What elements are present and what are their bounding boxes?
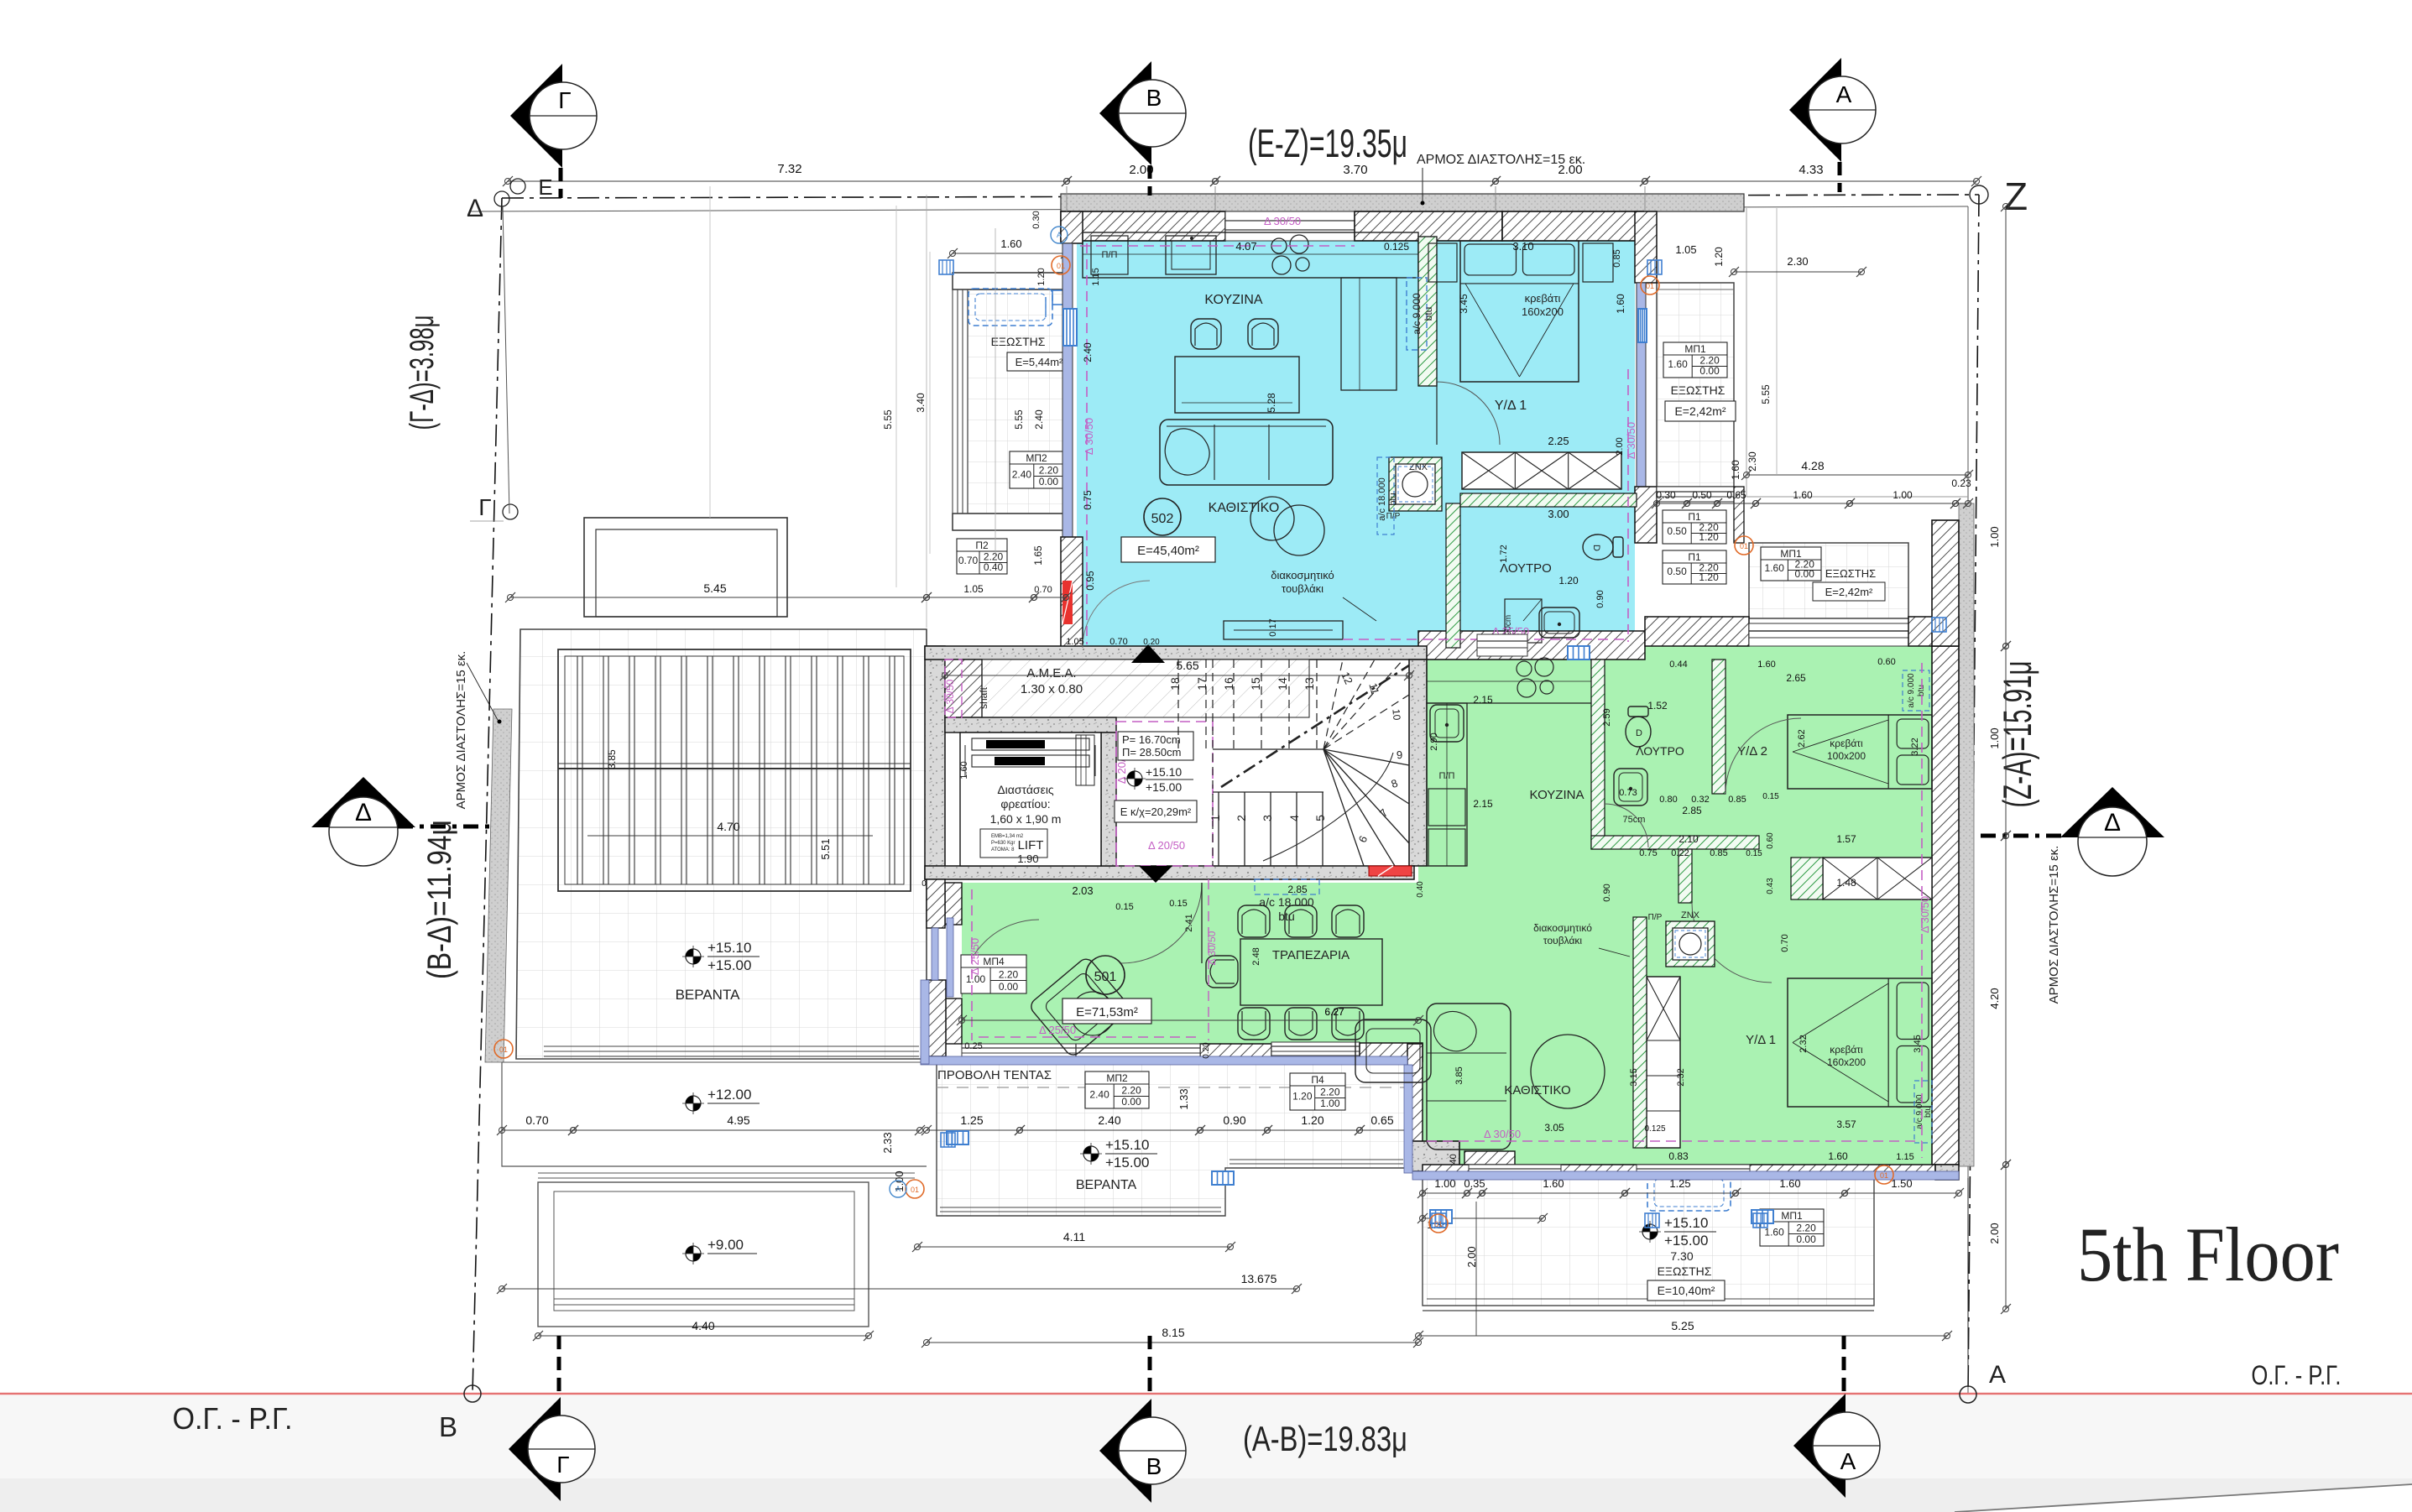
svg-text:+9.00: +9.00 bbox=[707, 1237, 744, 1253]
svg-text:2.40: 2.40 bbox=[1098, 1113, 1120, 1127]
svg-text:10: 10 bbox=[1390, 708, 1402, 721]
svg-text:Δ 30/50: Δ 30/50 bbox=[1625, 422, 1637, 459]
svg-text:3.15: 3.15 bbox=[1629, 1068, 1639, 1086]
svg-text:ΑΤΟΜΑ: 8: ΑΤΟΜΑ: 8 bbox=[991, 847, 1015, 852]
svg-text:+15.10: +15.10 bbox=[1664, 1215, 1708, 1231]
svg-text:4.07: 4.07 bbox=[1235, 240, 1256, 253]
svg-text:1.60: 1.60 bbox=[1828, 1150, 1848, 1162]
svg-text:2.85: 2.85 bbox=[1682, 805, 1702, 816]
svg-text:502: 502 bbox=[1151, 512, 1174, 526]
svg-text:ΕΞΩΣΤΗΣ: ΕΞΩΣΤΗΣ bbox=[991, 335, 1046, 348]
svg-text:0.60: 0.60 bbox=[1877, 657, 1895, 667]
svg-text:2.20: 2.20 bbox=[1121, 1085, 1141, 1097]
svg-text:a/c 9.000: a/c 9.000 bbox=[1411, 293, 1423, 335]
svg-text:4.28: 4.28 bbox=[1801, 459, 1824, 472]
svg-text:0.00: 0.00 bbox=[1699, 365, 1720, 377]
svg-text:8.15: 8.15 bbox=[1162, 1326, 1184, 1339]
svg-text:13: 13 bbox=[1303, 677, 1316, 691]
svg-text:ΜΠ1: ΜΠ1 bbox=[1781, 1210, 1803, 1222]
svg-text:0.00: 0.00 bbox=[999, 981, 1019, 993]
svg-text:Π/Ρ: Π/Ρ bbox=[1648, 913, 1663, 922]
svg-text:1.00: 1.00 bbox=[1893, 489, 1913, 501]
svg-text:Π/Π: Π/Π bbox=[1439, 771, 1455, 781]
svg-text:Δ 25/50: Δ 25/50 bbox=[968, 938, 981, 975]
svg-text:4.95: 4.95 bbox=[727, 1113, 749, 1127]
svg-text:2.20: 2.20 bbox=[1039, 465, 1059, 477]
svg-text:6.27: 6.27 bbox=[1324, 1006, 1344, 1018]
svg-text:0.65: 0.65 bbox=[1726, 489, 1746, 501]
svg-text:0.20: 0.20 bbox=[1202, 1042, 1211, 1059]
svg-text:Π4: Π4 bbox=[1311, 1074, 1324, 1086]
svg-text:0.70: 0.70 bbox=[1034, 585, 1052, 595]
svg-text:τουβλάκι: τουβλάκι bbox=[1282, 582, 1323, 595]
svg-text:1.00: 1.00 bbox=[1320, 1098, 1340, 1109]
svg-text:Δ 30/50: Δ 30/50 bbox=[1206, 931, 1218, 965]
svg-text:Δ: Δ bbox=[355, 799, 372, 826]
svg-text:+15.00: +15.00 bbox=[1664, 1233, 1708, 1249]
svg-text:2.32: 2.32 bbox=[1676, 1068, 1686, 1086]
svg-text:18: 18 bbox=[1168, 677, 1182, 691]
svg-text:(Γ-Δ)=3.98μ: (Γ-Δ)=3.98μ bbox=[404, 315, 441, 430]
svg-text:2.33: 2.33 bbox=[881, 1132, 894, 1153]
svg-text:Β: Β bbox=[1146, 1453, 1162, 1479]
svg-text:2.30: 2.30 bbox=[1787, 255, 1808, 268]
svg-text:5.55: 5.55 bbox=[1760, 384, 1772, 404]
svg-text:ΖΝΧ: ΖΝΧ bbox=[1409, 462, 1428, 472]
svg-text:0.125: 0.125 bbox=[1384, 241, 1409, 253]
svg-text:3.85: 3.85 bbox=[1454, 1066, 1464, 1084]
svg-text:3.00: 3.00 bbox=[1548, 508, 1569, 520]
svg-text:1.05: 1.05 bbox=[1675, 243, 1696, 256]
svg-text:0.22: 0.22 bbox=[1671, 848, 1689, 858]
svg-text:Δ 30/50: Δ 30/50 bbox=[1919, 896, 1931, 933]
svg-text:LIFT: LIFT bbox=[1018, 838, 1044, 852]
svg-text:Υ/Δ 1: Υ/Δ 1 bbox=[1746, 1033, 1776, 1047]
svg-text:1.57: 1.57 bbox=[1836, 833, 1856, 845]
svg-text:0.75: 0.75 bbox=[1082, 490, 1094, 510]
svg-text:2.41: 2.41 bbox=[1184, 914, 1194, 931]
svg-text:0.90: 0.90 bbox=[1602, 884, 1612, 901]
svg-text:3.22: 3.22 bbox=[1910, 738, 1920, 755]
svg-text:ΚΑΘΙΣΤΙΚΟ: ΚΑΘΙΣΤΙΚΟ bbox=[1504, 1083, 1570, 1098]
svg-text:1.20: 1.20 bbox=[1036, 268, 1047, 285]
svg-text:0.44: 0.44 bbox=[1669, 660, 1687, 670]
svg-text:ΚΟΥΖΙΝΑ: ΚΟΥΖΙΝΑ bbox=[1530, 788, 1585, 802]
svg-text:1.60: 1.60 bbox=[1765, 562, 1785, 574]
svg-text:2.25: 2.25 bbox=[1548, 435, 1569, 447]
svg-text:0.23: 0.23 bbox=[1951, 477, 1971, 489]
svg-text:ΒΕΡΑΝΤΑ: ΒΕΡΑΝΤΑ bbox=[676, 987, 740, 1003]
svg-text:Δ 20/50: Δ 20/50 bbox=[1148, 839, 1185, 852]
svg-text:2.40: 2.40 bbox=[1089, 1089, 1109, 1101]
svg-text:0.15: 0.15 bbox=[1746, 849, 1762, 858]
svg-text:ΕΞΩΣΤΗΣ: ΕΞΩΣΤΗΣ bbox=[1658, 1264, 1712, 1278]
svg-text:κρεβάτι: κρεβάτι bbox=[1830, 738, 1863, 749]
svg-text:1.00: 1.00 bbox=[1988, 526, 2001, 547]
svg-text:1.65: 1.65 bbox=[1032, 545, 1044, 566]
svg-text:0.85: 0.85 bbox=[1728, 795, 1746, 805]
svg-text:1.25: 1.25 bbox=[960, 1113, 983, 1127]
svg-text:Δ 25/50: Δ 25/50 bbox=[1039, 1024, 1076, 1036]
svg-text:0.85: 0.85 bbox=[1612, 249, 1622, 267]
svg-text:1.20: 1.20 bbox=[1699, 531, 1719, 543]
svg-text:0.70: 0.70 bbox=[1109, 637, 1127, 647]
svg-text:ΚΟΥΖΙΝΑ: ΚΟΥΖΙΝΑ bbox=[1204, 293, 1263, 307]
svg-text:0.70: 0.70 bbox=[1780, 934, 1790, 952]
svg-text:0.32: 0.32 bbox=[1691, 795, 1709, 805]
svg-text:1.33: 1.33 bbox=[1177, 1088, 1190, 1109]
svg-text:01: 01 bbox=[499, 1045, 508, 1054]
svg-text:+15.00: +15.00 bbox=[1146, 780, 1182, 794]
svg-text:0.00: 0.00 bbox=[1039, 476, 1059, 487]
svg-text:2.00: 2.00 bbox=[1988, 1223, 2001, 1243]
svg-text:5.45: 5.45 bbox=[703, 581, 726, 595]
svg-text:1: 1 bbox=[1209, 815, 1222, 821]
svg-text:1.20: 1.20 bbox=[1292, 1091, 1313, 1103]
svg-text:2.40: 2.40 bbox=[1082, 342, 1094, 362]
svg-text:+15.00: +15.00 bbox=[707, 957, 751, 973]
svg-text:διακοσμητικό: διακοσμητικό bbox=[1533, 922, 1592, 934]
svg-text:Π/Ρ: Π/Ρ bbox=[1386, 512, 1401, 521]
svg-text:ΕΞΩΣΤΗΣ: ΕΞΩΣΤΗΣ bbox=[1671, 383, 1725, 397]
svg-text:5: 5 bbox=[1313, 815, 1327, 821]
svg-text:1,60 x 1,90 m: 1,60 x 1,90 m bbox=[990, 812, 1062, 826]
svg-text:3.05: 3.05 bbox=[1544, 1122, 1564, 1134]
svg-text:D: D bbox=[1636, 728, 1642, 738]
svg-text:2.48: 2.48 bbox=[1251, 947, 1261, 965]
svg-text:9: 9 bbox=[1396, 748, 1403, 762]
svg-text:A: A bbox=[1057, 231, 1062, 239]
svg-text:3: 3 bbox=[1261, 815, 1274, 821]
svg-text:0.50: 0.50 bbox=[1667, 525, 1687, 537]
svg-text:3.85: 3.85 bbox=[606, 749, 618, 769]
svg-text:ΕΞΩΣΤΗΣ: ΕΞΩΣΤΗΣ bbox=[1825, 567, 1876, 580]
svg-text:E=5,44m²: E=5,44m² bbox=[1015, 356, 1063, 368]
svg-text:3.70: 3.70 bbox=[1343, 163, 1367, 177]
svg-text:shaft: shaft bbox=[978, 686, 989, 709]
svg-text:17: 17 bbox=[1195, 677, 1209, 691]
svg-text:0.83: 0.83 bbox=[1668, 1150, 1689, 1162]
svg-text:0.73: 0.73 bbox=[1619, 788, 1637, 798]
svg-text:Δ 30/50: Δ 30/50 bbox=[1264, 215, 1301, 227]
svg-text:0.70: 0.70 bbox=[525, 1113, 548, 1127]
svg-text:4: 4 bbox=[1287, 815, 1301, 821]
svg-text:1.60: 1.60 bbox=[959, 761, 969, 779]
svg-text:0.40: 0.40 bbox=[1416, 881, 1425, 898]
svg-text:3.45: 3.45 bbox=[1913, 1035, 1923, 1052]
svg-text:13.675: 13.675 bbox=[1241, 1272, 1277, 1285]
svg-text:Α: Α bbox=[1836, 81, 1852, 107]
svg-text:0.25: 0.25 bbox=[964, 1041, 982, 1051]
svg-text:(A-B)=19.83μ: (A-B)=19.83μ bbox=[1243, 1419, 1407, 1458]
svg-text:Π= 28.50cm: Π= 28.50cm bbox=[1122, 746, 1181, 759]
svg-text:+15.10: +15.10 bbox=[707, 940, 751, 956]
svg-text:Γ: Γ bbox=[556, 1452, 569, 1478]
svg-text:1.60: 1.60 bbox=[1793, 489, 1813, 501]
svg-text:160x200: 160x200 bbox=[1522, 305, 1564, 318]
svg-text:ΜΠ2: ΜΠ2 bbox=[1106, 1072, 1128, 1084]
svg-text:5.28: 5.28 bbox=[1266, 393, 1277, 413]
svg-text:01: 01 bbox=[1646, 282, 1654, 290]
svg-text:Α: Α bbox=[1989, 1361, 2006, 1389]
svg-text:0.43: 0.43 bbox=[1766, 878, 1775, 894]
svg-text:Δ 30/50: Δ 30/50 bbox=[1083, 418, 1095, 455]
svg-text:P= 16.70cm: P= 16.70cm bbox=[1122, 733, 1181, 746]
svg-text:P=630 Kgr: P=630 Kgr bbox=[991, 841, 1015, 846]
svg-text:Π2: Π2 bbox=[975, 540, 989, 551]
svg-text:1.15: 1.15 bbox=[1091, 268, 1101, 285]
svg-text:φρεατίου:: φρεατίου: bbox=[1000, 797, 1050, 811]
svg-text:2.30: 2.30 bbox=[1746, 451, 1758, 472]
svg-text:4.33: 4.33 bbox=[1799, 163, 1823, 177]
svg-text:15: 15 bbox=[1249, 677, 1262, 691]
svg-text:btu: btu bbox=[1388, 493, 1398, 505]
svg-text:1.20: 1.20 bbox=[1699, 571, 1719, 583]
svg-text:Δ: Δ bbox=[467, 195, 483, 222]
svg-text:2.65: 2.65 bbox=[1786, 672, 1806, 684]
svg-text:2.62: 2.62 bbox=[1797, 729, 1807, 747]
svg-text:(E-Z)=19.35μ: (E-Z)=19.35μ bbox=[1248, 121, 1407, 165]
svg-text:0.60: 0.60 bbox=[1766, 832, 1775, 849]
svg-text:2.32: 2.32 bbox=[1799, 1035, 1809, 1052]
svg-text:Ε κ/χ=20,29m²: Ε κ/χ=20,29m² bbox=[1120, 806, 1192, 818]
svg-text:2: 2 bbox=[1235, 815, 1248, 821]
svg-text:160x200: 160x200 bbox=[1827, 1056, 1866, 1068]
svg-text:01: 01 bbox=[1880, 1171, 1888, 1180]
svg-text:1.60: 1.60 bbox=[1668, 358, 1688, 370]
svg-text:Δ 30/50: Δ 30/50 bbox=[1484, 1128, 1521, 1140]
svg-text:01: 01 bbox=[911, 1186, 919, 1194]
svg-text:2.10: 2.10 bbox=[1678, 833, 1699, 845]
svg-text:Π/Π: Π/Π bbox=[1102, 250, 1118, 260]
svg-text:btu: btu bbox=[1924, 1106, 1933, 1118]
svg-text:1.20: 1.20 bbox=[1301, 1113, 1323, 1127]
svg-text:2.00: 2.00 bbox=[1615, 437, 1625, 455]
svg-text:Δ: Δ bbox=[2104, 809, 2121, 837]
svg-text:+15.00: +15.00 bbox=[1105, 1155, 1149, 1170]
svg-text:0.50: 0.50 bbox=[1692, 489, 1712, 501]
svg-text:01: 01 bbox=[1740, 542, 1748, 550]
svg-text:E=45,40m²: E=45,40m² bbox=[1137, 544, 1199, 558]
svg-text:0.15: 0.15 bbox=[1115, 902, 1133, 912]
svg-text:3.10: 3.10 bbox=[1512, 240, 1533, 253]
svg-text:2.20: 2.20 bbox=[999, 969, 1019, 981]
svg-text:1.60: 1.60 bbox=[1757, 660, 1775, 670]
svg-text:κρεβάτι: κρεβάτι bbox=[1830, 1044, 1863, 1056]
svg-text:5.51: 5.51 bbox=[819, 838, 832, 859]
svg-text:0.17: 0.17 bbox=[1268, 618, 1278, 636]
svg-text:1.20: 1.20 bbox=[1713, 247, 1725, 267]
svg-text:a/c 9.000: a/c 9.000 bbox=[1907, 673, 1916, 708]
svg-text:2.40: 2.40 bbox=[1012, 469, 1032, 481]
svg-text:a/c 18.000: a/c 18.000 bbox=[1377, 477, 1387, 520]
svg-text:A: A bbox=[895, 1185, 901, 1193]
svg-text:ΑΡΜΟΣ ΔΙΑΣΤΟΛΗΣ=15 εκ.: ΑΡΜΟΣ ΔΙΑΣΤΟΛΗΣ=15 εκ. bbox=[2047, 846, 2061, 1004]
svg-text:ΠΡΟΒΟΛΗ ΤΕΝΤΑΣ: ΠΡΟΒΟΛΗ ΤΕΝΤΑΣ bbox=[937, 1068, 1052, 1082]
svg-text:1.60: 1.60 bbox=[1615, 294, 1626, 314]
svg-text:0.90: 0.90 bbox=[1223, 1113, 1245, 1127]
svg-text:0.90: 0.90 bbox=[1595, 590, 1605, 607]
svg-text:2.90: 2.90 bbox=[1429, 733, 1439, 750]
svg-text:2.20: 2.20 bbox=[1796, 1223, 1816, 1234]
svg-text:E=71,53m²: E=71,53m² bbox=[1076, 1005, 1138, 1019]
svg-text:Διαστάσεις: Διαστάσεις bbox=[997, 783, 1054, 796]
svg-text:14: 14 bbox=[1276, 677, 1289, 691]
svg-text:3.40: 3.40 bbox=[915, 393, 927, 413]
svg-text:1.60: 1.60 bbox=[1730, 460, 1741, 480]
svg-text:τουβλάκι: τουβλάκι bbox=[1543, 935, 1582, 946]
svg-text:0.70: 0.70 bbox=[958, 555, 979, 566]
svg-text:ΜΠ4: ΜΠ4 bbox=[983, 956, 1005, 967]
svg-text:0.00: 0.00 bbox=[1795, 568, 1815, 580]
svg-text:0.85: 0.85 bbox=[1710, 848, 1727, 858]
svg-text:0.40: 0.40 bbox=[984, 561, 1004, 573]
svg-text:501: 501 bbox=[1094, 970, 1117, 984]
svg-text:2.40: 2.40 bbox=[1033, 409, 1045, 430]
svg-text:Ε: Ε bbox=[538, 175, 552, 200]
svg-text:Υ/Δ 1: Υ/Δ 1 bbox=[1495, 399, 1527, 413]
svg-text:Ο.Γ. - Ρ.Γ.: Ο.Γ. - Ρ.Γ. bbox=[173, 1401, 293, 1436]
svg-text:btu: btu bbox=[1423, 307, 1434, 321]
svg-text:0.00: 0.00 bbox=[1796, 1233, 1816, 1245]
svg-text:ΑΡΜΟΣ ΔΙΑΣΤΟΛΗΣ=15 εκ.: ΑΡΜΟΣ ΔΙΑΣΤΟΛΗΣ=15 εκ. bbox=[454, 651, 468, 810]
svg-text:Α.Μ.Ε.Α.: Α.Μ.Ε.Α. bbox=[1026, 666, 1076, 680]
svg-text:5.65: 5.65 bbox=[1176, 659, 1198, 672]
svg-text:100x200: 100x200 bbox=[1827, 750, 1866, 762]
svg-text:btu: btu bbox=[1278, 910, 1294, 923]
svg-text:0.30: 0.30 bbox=[1031, 211, 1042, 228]
svg-text:5th Floor: 5th Floor bbox=[2077, 1212, 2339, 1297]
svg-text:+12.00: +12.00 bbox=[707, 1087, 751, 1103]
svg-text:2.15: 2.15 bbox=[1473, 798, 1493, 810]
svg-text:a/c 18.000: a/c 18.000 bbox=[1259, 895, 1314, 909]
svg-text:3.57: 3.57 bbox=[1836, 1118, 1856, 1130]
svg-text:2.59: 2.59 bbox=[1602, 708, 1612, 726]
svg-text:1.20: 1.20 bbox=[1558, 575, 1579, 587]
svg-text:0.50: 0.50 bbox=[1667, 566, 1687, 577]
svg-text:5.55: 5.55 bbox=[882, 409, 894, 430]
svg-text:2.20: 2.20 bbox=[1320, 1087, 1340, 1098]
svg-text:0.125: 0.125 bbox=[1644, 1124, 1665, 1134]
svg-text:ΖΝΧ: ΖΝΧ bbox=[1681, 910, 1700, 920]
svg-text:(Z-A)=15.91μ: (Z-A)=15.91μ bbox=[1995, 661, 2039, 808]
svg-text:1.90: 1.90 bbox=[1017, 852, 1038, 865]
svg-text:E=2,42m²: E=2,42m² bbox=[1674, 404, 1725, 418]
svg-text:Γ: Γ bbox=[558, 87, 571, 113]
svg-text:+15.10: +15.10 bbox=[1146, 765, 1182, 779]
svg-text:E=10,40m²: E=10,40m² bbox=[1658, 1284, 1715, 1297]
svg-text:5.25: 5.25 bbox=[1671, 1319, 1694, 1332]
svg-text:0.65: 0.65 bbox=[1370, 1113, 1393, 1127]
svg-text:ΒΕΡΑΝΤΑ: ΒΕΡΑΝΤΑ bbox=[1076, 1178, 1137, 1192]
svg-text:7.32: 7.32 bbox=[777, 162, 801, 176]
svg-text:Z: Z bbox=[2004, 175, 2028, 218]
svg-text:0.75: 0.75 bbox=[1639, 848, 1657, 858]
svg-text:Β: Β bbox=[439, 1411, 457, 1442]
svg-text:5.55: 5.55 bbox=[1013, 409, 1025, 430]
svg-text:Β: Β bbox=[1146, 85, 1162, 111]
svg-text:0.15: 0.15 bbox=[1762, 792, 1779, 801]
svg-text:2.15: 2.15 bbox=[1473, 694, 1493, 706]
svg-text:κρεβάτι: κρεβάτι bbox=[1525, 292, 1561, 305]
svg-text:2.00: 2.00 bbox=[1558, 163, 1582, 177]
svg-text:4.20: 4.20 bbox=[1988, 988, 2001, 1009]
svg-text:01: 01 bbox=[1057, 262, 1065, 270]
svg-text:ΜΠ1: ΜΠ1 bbox=[1684, 343, 1706, 355]
svg-text:Γ: Γ bbox=[478, 494, 491, 520]
svg-text:1.52: 1.52 bbox=[1647, 700, 1668, 712]
svg-text:1.30 x 0.80: 1.30 x 0.80 bbox=[1021, 682, 1083, 696]
svg-text:4.40: 4.40 bbox=[692, 1319, 714, 1332]
svg-text:ΜΠ2: ΜΠ2 bbox=[1026, 452, 1047, 464]
svg-text:1.15: 1.15 bbox=[1896, 1152, 1913, 1162]
svg-text:διακοσμητικό: διακοσμητικό bbox=[1271, 569, 1334, 581]
svg-text:0.20: 0.20 bbox=[1143, 638, 1160, 647]
svg-text:+15.10: +15.10 bbox=[1105, 1137, 1149, 1153]
svg-text:1.05: 1.05 bbox=[963, 583, 984, 595]
svg-text:Δ 30/50: Δ 30/50 bbox=[944, 679, 956, 713]
svg-text:0.30: 0.30 bbox=[1656, 489, 1676, 501]
svg-text:ΚΑΘΙΣΤΙΚΟ: ΚΑΘΙΣΤΙΚΟ bbox=[1209, 501, 1280, 515]
svg-text:3.45: 3.45 bbox=[1458, 294, 1470, 314]
svg-text:4.70: 4.70 bbox=[717, 820, 739, 833]
svg-text:0.80: 0.80 bbox=[1659, 795, 1677, 805]
svg-text:Ο.Γ. - Ρ.Γ.: Ο.Γ. - Ρ.Γ. bbox=[2252, 1360, 2342, 1390]
svg-text:1.05: 1.05 bbox=[1066, 637, 1083, 647]
svg-text:1.00: 1.00 bbox=[1988, 727, 2001, 748]
svg-text:75cm: 75cm bbox=[1623, 815, 1646, 825]
svg-text:01: 01 bbox=[1434, 1220, 1443, 1228]
svg-text:0.15: 0.15 bbox=[1169, 899, 1187, 909]
svg-text:16: 16 bbox=[1222, 677, 1235, 691]
svg-text:(Β-Δ)=11.94μ: (Β-Δ)=11.94μ bbox=[421, 820, 458, 979]
svg-text:2.85: 2.85 bbox=[1287, 884, 1308, 895]
svg-text:ΤΡΑΠΕΖΑΡΙΑ: ΤΡΑΠΕΖΑΡΙΑ bbox=[1272, 948, 1350, 962]
svg-text:7.30: 7.30 bbox=[1670, 1249, 1693, 1263]
svg-text:1.60: 1.60 bbox=[1000, 237, 1021, 250]
svg-text:0.00: 0.00 bbox=[1121, 1096, 1141, 1108]
svg-text:1.72: 1.72 bbox=[1499, 545, 1509, 562]
svg-text:0.95: 0.95 bbox=[1084, 571, 1096, 591]
svg-text:E=2,42m²: E=2,42m² bbox=[1825, 586, 1873, 598]
svg-text:Α: Α bbox=[1840, 1448, 1856, 1474]
svg-text:4.11: 4.11 bbox=[1063, 1230, 1085, 1243]
svg-text:1.48: 1.48 bbox=[1836, 877, 1856, 889]
svg-text:D: D bbox=[1591, 545, 1601, 551]
svg-text:2.03: 2.03 bbox=[1072, 884, 1093, 897]
